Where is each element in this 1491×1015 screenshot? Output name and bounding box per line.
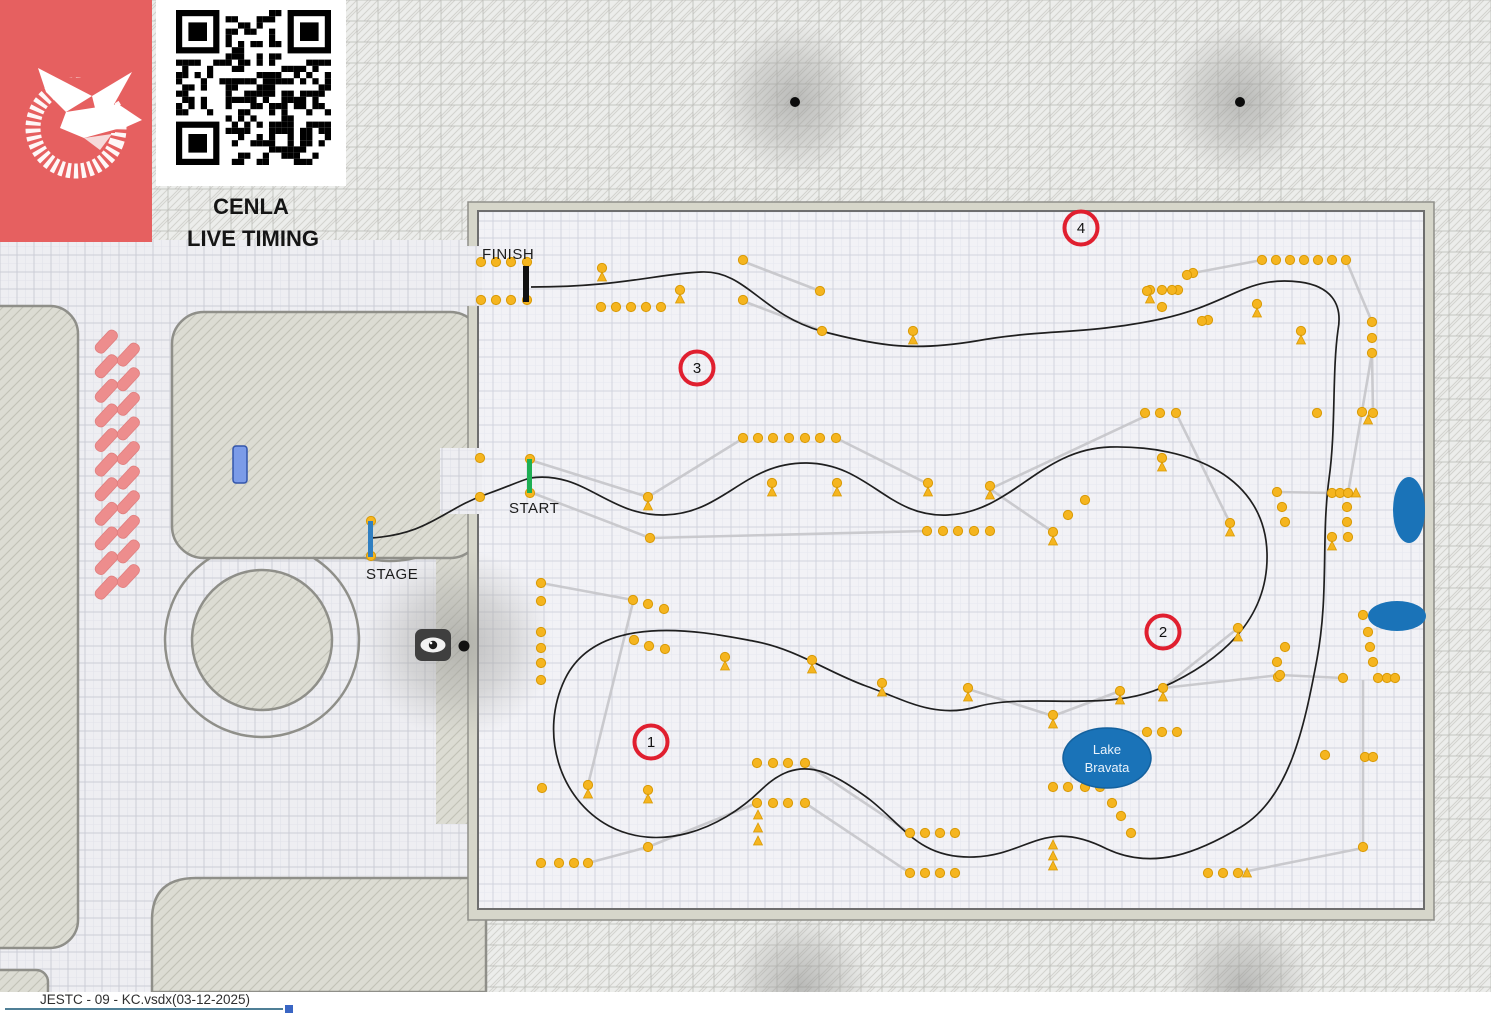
stage-label: STAGE: [366, 566, 418, 583]
footer-date: (03-12-2025): [172, 992, 250, 1007]
svg-text:2: 2: [1159, 624, 1167, 641]
svg-text:Bravata: Bravata: [1085, 760, 1131, 775]
site-title-line2: LIVE TIMING: [187, 226, 319, 251]
island-left-strip: [0, 306, 78, 948]
island-disc-south: [192, 570, 332, 710]
start-label: START: [509, 500, 559, 517]
top-road: [0, 244, 486, 308]
svg-text:Lake: Lake: [1093, 742, 1121, 757]
footer-chip[interactable]: [285, 1005, 293, 1013]
svg-text:1: 1: [647, 734, 655, 751]
svg-text:3: 3: [693, 360, 701, 377]
map-canvas: 1234 LakeBravata FINISH START STAGE CENL…: [0, 0, 1491, 1015]
blue-marker: [233, 446, 247, 483]
footer-filename: JESTC - 09 - KC.vsdx: [40, 992, 172, 1007]
site-title-line1: CENLA: [213, 194, 289, 219]
island-bottom: [152, 878, 486, 992]
finish-label: FINISH: [482, 246, 534, 263]
camera-dot: [459, 641, 470, 652]
course-area: [478, 211, 1424, 909]
svg-text:4: 4: [1077, 220, 1085, 237]
island-block: [172, 312, 482, 558]
course-map: 1234 LakeBravata FINISH START STAGE CENL…: [0, 0, 1491, 1015]
lake-bravata: LakeBravata: [1063, 728, 1151, 788]
